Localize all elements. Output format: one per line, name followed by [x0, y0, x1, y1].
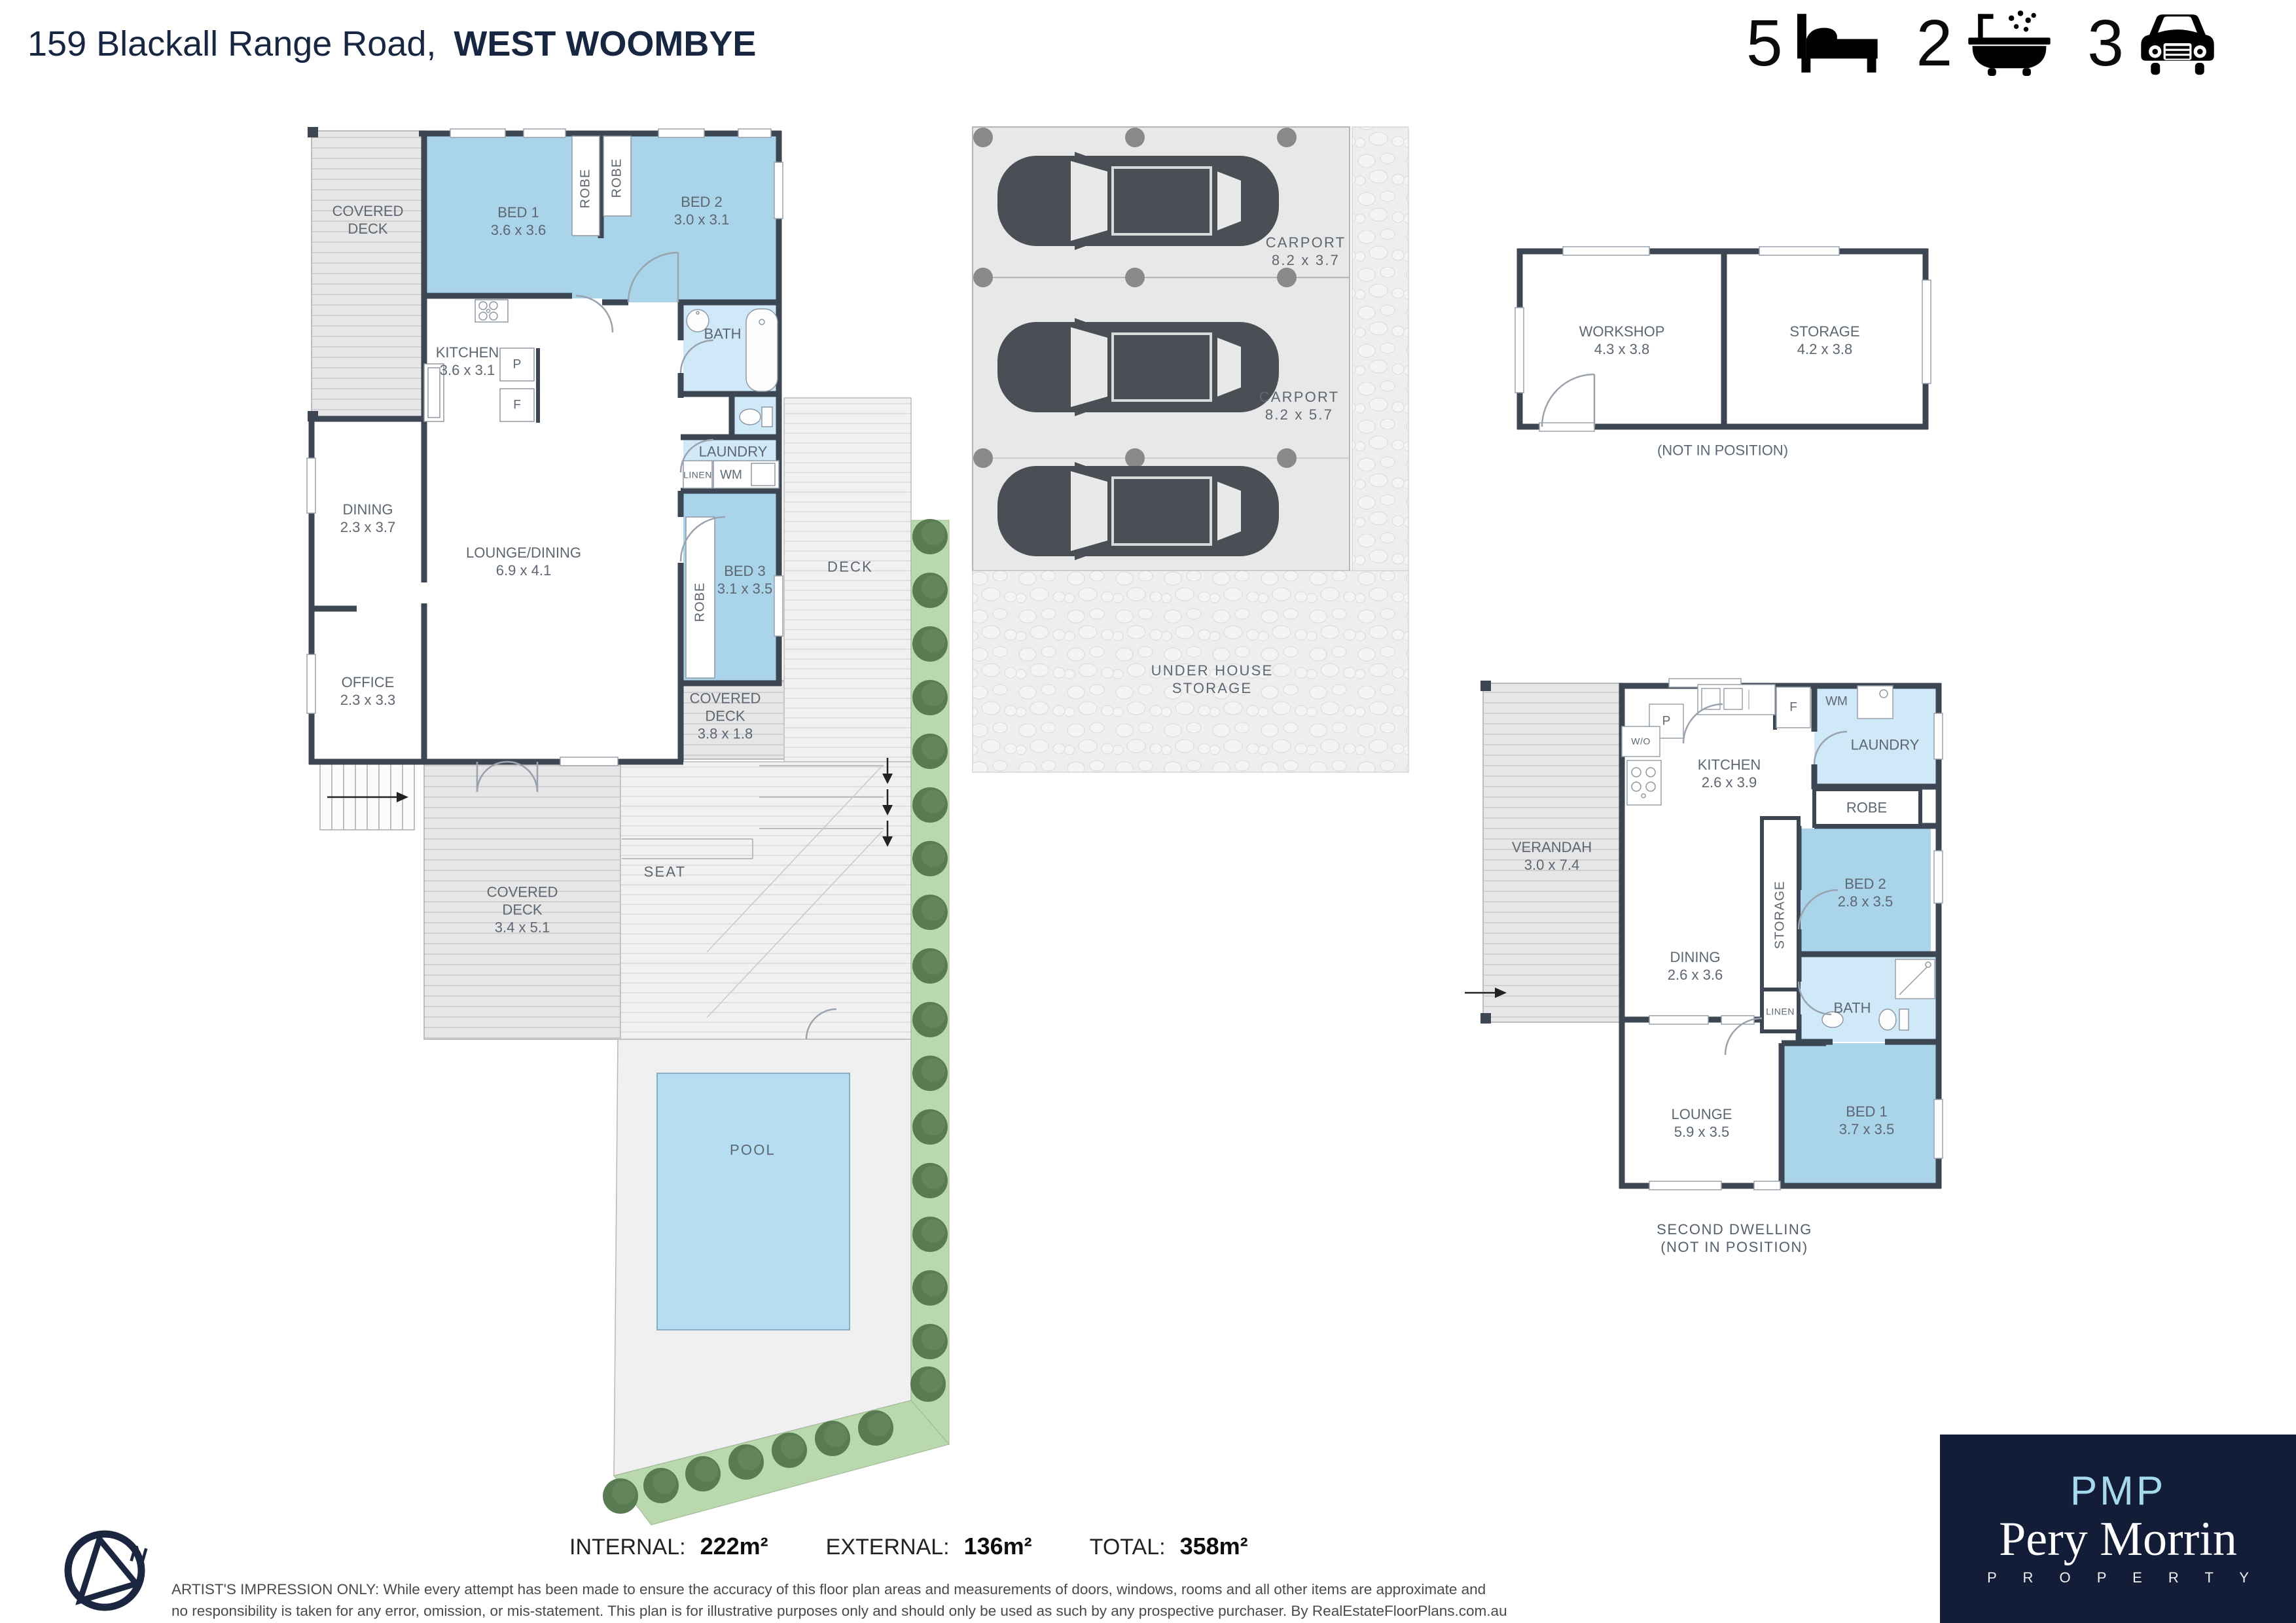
car-top-view	[997, 462, 1279, 560]
room-label-dining2: DINING 2.6 x 3.6	[1668, 948, 1723, 984]
room-label-bed2: BED 2 3.0 x 3.1	[674, 193, 729, 228]
suburb-text: WEST WOOMBYE	[454, 24, 756, 63]
internal-value: 222m²	[700, 1533, 768, 1560]
stat-beds: 5	[1746, 6, 1881, 81]
room-label-under-house-storage: UNDER HOUSE STORAGE	[1151, 662, 1274, 697]
pool	[657, 1073, 850, 1330]
agency-logo: PMP Pery Morrin P R O P E R T Y	[1940, 1435, 2296, 1623]
disclaimer-line2: no responsibility is taken for any error…	[171, 1600, 1507, 1622]
room-label-storage: STORAGE 4.2 x 3.8	[1789, 323, 1859, 358]
room-label-robe2: ROBE	[609, 158, 626, 198]
total-label: TOTAL:	[1090, 1535, 1166, 1560]
bath-icon	[1967, 10, 2052, 77]
room-label-laundry2: LAUNDRY	[1851, 736, 1920, 754]
logo-monogram: PMP	[2070, 1471, 2166, 1512]
label-pool: POOL	[730, 1141, 776, 1159]
label-linen: LINEN	[683, 467, 712, 484]
room-label-lounge2: LOUNGE 5.9 x 3.5	[1672, 1105, 1732, 1141]
label-wall-oven: W/O	[1631, 733, 1651, 751]
room-label-workshop: WORKSHOP 4.3 x 3.8	[1579, 323, 1665, 358]
room-label-storage-sd: STORAGE	[1772, 881, 1789, 949]
room-label-covered-deck-2: COVERED DECK 3.8 x 1.8	[690, 690, 761, 743]
car-top-view	[997, 318, 1279, 416]
address-text: 159 Blackall Range Road,	[27, 24, 436, 63]
label-wm: WM	[720, 467, 742, 484]
stat-cars: 3	[2087, 6, 2217, 81]
internal-label: INTERNAL:	[569, 1535, 686, 1560]
car-icon	[2138, 10, 2217, 76]
property-stats: 5 2 3	[1746, 9, 2217, 77]
label-fridge2: F	[1789, 699, 1797, 717]
room-label-bath: BATH	[704, 325, 741, 343]
room-label-bed2-sd: BED 2 2.8 x 3.5	[1838, 875, 1893, 910]
label-wm2: WM	[1825, 693, 1848, 711]
logo-tagline: P R O P E R T Y	[1976, 1569, 2260, 1586]
outbuilding	[1515, 247, 1931, 431]
room-label-office: OFFICE 2.3 x 3.3	[340, 673, 395, 709]
room-label-robe1: ROBE	[577, 169, 595, 209]
label-seat: SEAT	[644, 863, 687, 881]
room-label-carport2: CARPORT 8.2 x 5.7	[1259, 388, 1340, 423]
second-dwelling-caption: SECOND DWELLING (NOT IN POSITION)	[1657, 1221, 1812, 1256]
floorplan-canvas: N 159 Blackall Range Road, WEST WOOMBYE …	[0, 0, 2296, 1623]
beds-count: 5	[1746, 6, 1783, 81]
room-label-robe3: ROBE	[692, 582, 709, 622]
label-pantry2: P	[1662, 713, 1671, 730]
room-label-laundry: LAUNDRY	[699, 443, 768, 461]
label-linen2: LINEN	[1766, 1003, 1795, 1021]
room-label-bed1-sd: BED 1 3.7 x 3.5	[1839, 1103, 1894, 1138]
room-label-verandah: VERANDAH 3.0 x 7.4	[1512, 838, 1592, 874]
baths-count: 2	[1916, 6, 1953, 81]
external-value: 136m²	[964, 1533, 1032, 1560]
room-label-covered-deck-3: COVERED DECK 3.4 x 5.1	[487, 883, 558, 936]
area-summary: INTERNAL: 222m² EXTERNAL: 136m² TOTAL: 3…	[569, 1533, 1248, 1560]
external-label: EXTERNAL:	[826, 1535, 950, 1560]
total-value: 358m²	[1180, 1533, 1248, 1560]
room-label-lounge-dining: LOUNGE/DINING 6.9 x 4.1	[466, 544, 581, 579]
room-label-kitchen2: KITCHEN 2.6 x 3.9	[1698, 756, 1761, 791]
disclaimer: ARTIST'S IMPRESSION ONLY: While every at…	[171, 1578, 1507, 1622]
room-label-carport1: CARPORT 8.2 x 3.7	[1266, 234, 1346, 269]
stat-baths: 2	[1916, 6, 2053, 81]
room-label-bath2: BATH	[1833, 999, 1871, 1017]
page-title: 159 Blackall Range Road, WEST WOOMBYE	[27, 24, 756, 64]
room-label-bed3: BED 3 3.1 x 3.5	[717, 562, 772, 597]
room-label-covered-deck-left: COVERED DECK	[332, 202, 404, 238]
compass-icon: N	[68, 1534, 151, 1607]
bed-icon	[1797, 12, 1881, 75]
cars-count: 3	[2087, 6, 2124, 81]
room-label-robe-sd: ROBE	[1846, 799, 1887, 817]
logo-name: Pery Morrin	[1999, 1512, 2237, 1567]
label-fridge: F	[513, 397, 521, 414]
car-top-view	[997, 152, 1279, 250]
room-label-dining: DINING 2.3 x 3.7	[340, 501, 395, 536]
label-deck: DECK	[827, 558, 873, 576]
disclaimer-line1: ARTIST'S IMPRESSION ONLY: While every at…	[171, 1578, 1507, 1600]
room-label-bed1: BED 1 3.6 x 3.6	[491, 204, 546, 239]
label-not-in-position: (NOT IN POSITION)	[1657, 442, 1788, 459]
label-pantry: P	[513, 356, 522, 374]
floorplan-graphics: N	[0, 0, 2296, 1623]
room-label-kitchen: KITCHEN 3.6 x 3.1	[436, 344, 499, 379]
